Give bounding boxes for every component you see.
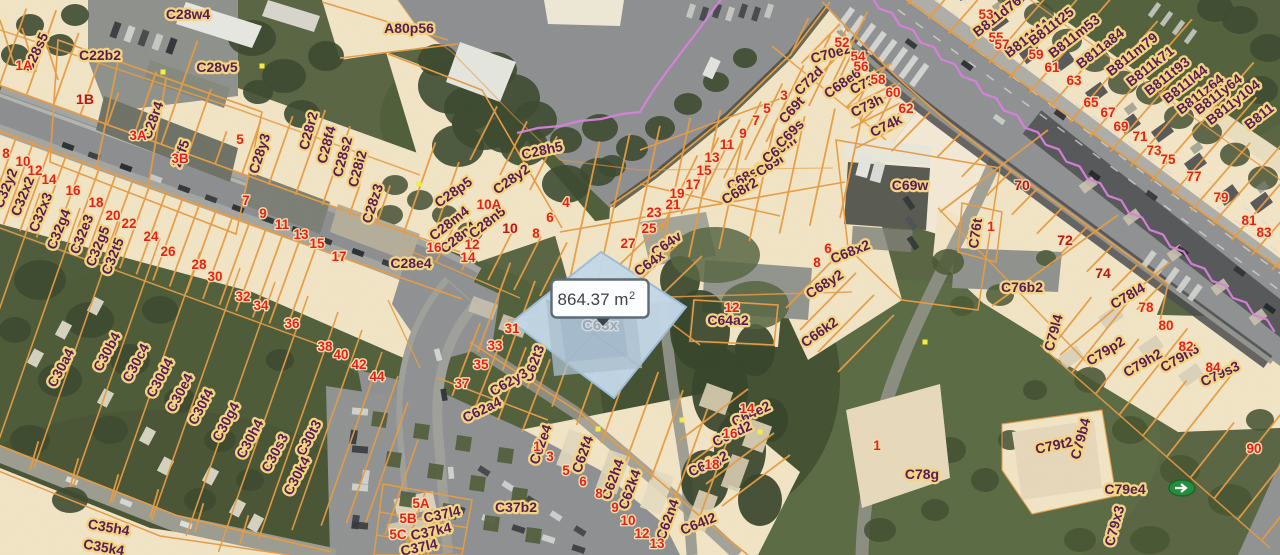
svg-text:26: 26 bbox=[160, 244, 176, 259]
svg-text:9: 9 bbox=[739, 126, 747, 141]
svg-text:2: 2 bbox=[629, 290, 635, 302]
svg-text:82: 82 bbox=[1178, 339, 1193, 354]
svg-text:5: 5 bbox=[763, 101, 771, 116]
svg-text:5C: 5C bbox=[389, 527, 407, 542]
svg-text:C28e4: C28e4 bbox=[390, 255, 431, 271]
svg-text:81: 81 bbox=[1241, 213, 1257, 228]
svg-text:10: 10 bbox=[620, 513, 635, 528]
svg-text:67: 67 bbox=[1100, 105, 1115, 120]
svg-text:28: 28 bbox=[191, 257, 207, 272]
svg-text:C28w4: C28w4 bbox=[166, 6, 211, 22]
svg-text:10A: 10A bbox=[477, 197, 502, 212]
svg-text:34: 34 bbox=[253, 298, 269, 313]
svg-text:17: 17 bbox=[331, 249, 346, 264]
svg-text:74: 74 bbox=[1095, 265, 1111, 281]
svg-text:1A: 1A bbox=[15, 58, 33, 73]
svg-text:8: 8 bbox=[532, 226, 540, 241]
svg-text:16: 16 bbox=[722, 426, 738, 441]
svg-text:77: 77 bbox=[1186, 169, 1201, 184]
svg-text:69: 69 bbox=[1113, 119, 1128, 134]
svg-text:7: 7 bbox=[752, 113, 760, 128]
svg-text:35: 35 bbox=[473, 357, 489, 372]
svg-text:36: 36 bbox=[284, 316, 300, 331]
svg-text:1: 1 bbox=[533, 439, 541, 454]
svg-text:15: 15 bbox=[696, 163, 712, 178]
svg-text:C78g: C78g bbox=[905, 466, 939, 482]
svg-text:5B: 5B bbox=[399, 511, 417, 526]
svg-text:12: 12 bbox=[724, 300, 739, 315]
svg-text:3: 3 bbox=[780, 88, 788, 103]
svg-text:31: 31 bbox=[504, 321, 520, 336]
svg-text:13: 13 bbox=[649, 536, 665, 551]
svg-text:63: 63 bbox=[1066, 73, 1082, 88]
svg-text:1B: 1B bbox=[76, 91, 94, 107]
svg-text:8: 8 bbox=[595, 486, 603, 501]
svg-text:72: 72 bbox=[1057, 232, 1073, 248]
svg-text:C76b2: C76b2 bbox=[1001, 279, 1043, 295]
svg-text:57: 57 bbox=[994, 37, 1009, 52]
svg-text:30: 30 bbox=[207, 269, 222, 284]
svg-text:70: 70 bbox=[1014, 177, 1030, 193]
svg-text:C22b2: C22b2 bbox=[79, 47, 121, 63]
svg-text:71: 71 bbox=[1132, 129, 1148, 144]
svg-text:40: 40 bbox=[333, 347, 348, 362]
svg-text:21: 21 bbox=[665, 197, 681, 212]
svg-text:14: 14 bbox=[739, 401, 755, 416]
svg-text:56: 56 bbox=[853, 59, 869, 74]
svg-text:3: 3 bbox=[546, 449, 554, 464]
svg-text:20: 20 bbox=[105, 208, 120, 223]
svg-text:C79e4: C79e4 bbox=[1104, 481, 1145, 497]
svg-text:6: 6 bbox=[824, 241, 832, 256]
svg-text:9: 9 bbox=[259, 206, 267, 221]
svg-text:864.37 m: 864.37 m bbox=[558, 290, 629, 309]
svg-text:8: 8 bbox=[813, 255, 821, 270]
svg-text:75: 75 bbox=[1160, 152, 1176, 167]
svg-text:3B: 3B bbox=[171, 151, 189, 166]
svg-text:A80p56: A80p56 bbox=[384, 20, 434, 36]
svg-text:58: 58 bbox=[870, 72, 886, 87]
svg-text:37: 37 bbox=[454, 376, 469, 391]
svg-text:33: 33 bbox=[487, 338, 503, 353]
svg-text:80: 80 bbox=[1158, 318, 1173, 333]
svg-text:10: 10 bbox=[502, 220, 518, 236]
svg-text:5A: 5A bbox=[412, 496, 430, 511]
svg-text:62: 62 bbox=[898, 101, 913, 116]
svg-text:7: 7 bbox=[242, 193, 250, 208]
svg-text:C69w: C69w bbox=[892, 177, 929, 193]
svg-text:83: 83 bbox=[1256, 225, 1272, 240]
svg-text:23: 23 bbox=[646, 205, 662, 220]
svg-text:44: 44 bbox=[369, 369, 385, 384]
svg-text:13: 13 bbox=[293, 227, 309, 242]
svg-text:15: 15 bbox=[309, 236, 325, 251]
svg-text:C28v5: C28v5 bbox=[196, 59, 237, 75]
svg-text:79: 79 bbox=[1213, 190, 1228, 205]
svg-text:32: 32 bbox=[235, 289, 250, 304]
svg-text:11: 11 bbox=[275, 217, 290, 232]
svg-text:5: 5 bbox=[236, 132, 244, 147]
svg-text:3A: 3A bbox=[129, 128, 147, 143]
svg-text:27: 27 bbox=[620, 236, 635, 251]
svg-text:6: 6 bbox=[579, 474, 587, 489]
svg-text:17: 17 bbox=[685, 177, 700, 192]
svg-text:78: 78 bbox=[1138, 300, 1154, 315]
svg-text:9: 9 bbox=[611, 500, 619, 515]
svg-text:18: 18 bbox=[704, 457, 720, 472]
svg-text:4: 4 bbox=[562, 195, 570, 210]
svg-text:14: 14 bbox=[41, 172, 57, 187]
svg-text:60: 60 bbox=[885, 85, 900, 100]
svg-text:5: 5 bbox=[562, 463, 570, 478]
svg-text:61: 61 bbox=[1044, 60, 1060, 75]
svg-text:8: 8 bbox=[2, 146, 10, 161]
svg-text:38: 38 bbox=[317, 339, 333, 354]
svg-text:65: 65 bbox=[1083, 95, 1099, 110]
svg-text:42: 42 bbox=[351, 357, 366, 372]
svg-text:59: 59 bbox=[1028, 47, 1043, 62]
svg-text:16: 16 bbox=[426, 240, 442, 255]
svg-text:12: 12 bbox=[27, 163, 42, 178]
svg-text:14: 14 bbox=[460, 250, 476, 265]
svg-text:18: 18 bbox=[88, 195, 104, 210]
svg-text:84: 84 bbox=[1205, 360, 1221, 375]
svg-text:22: 22 bbox=[121, 216, 136, 231]
svg-text:52: 52 bbox=[834, 35, 849, 50]
svg-text:16: 16 bbox=[65, 183, 81, 198]
svg-text:6: 6 bbox=[546, 210, 554, 225]
svg-text:12: 12 bbox=[634, 526, 649, 541]
svg-text:90: 90 bbox=[1246, 441, 1261, 456]
svg-text:C37b2: C37b2 bbox=[495, 499, 537, 515]
svg-text:53: 53 bbox=[978, 7, 994, 22]
svg-text:1: 1 bbox=[987, 219, 995, 234]
svg-text:25: 25 bbox=[641, 221, 657, 236]
svg-text:11: 11 bbox=[720, 137, 735, 152]
svg-text:1: 1 bbox=[873, 438, 881, 453]
svg-text:24: 24 bbox=[143, 229, 159, 244]
